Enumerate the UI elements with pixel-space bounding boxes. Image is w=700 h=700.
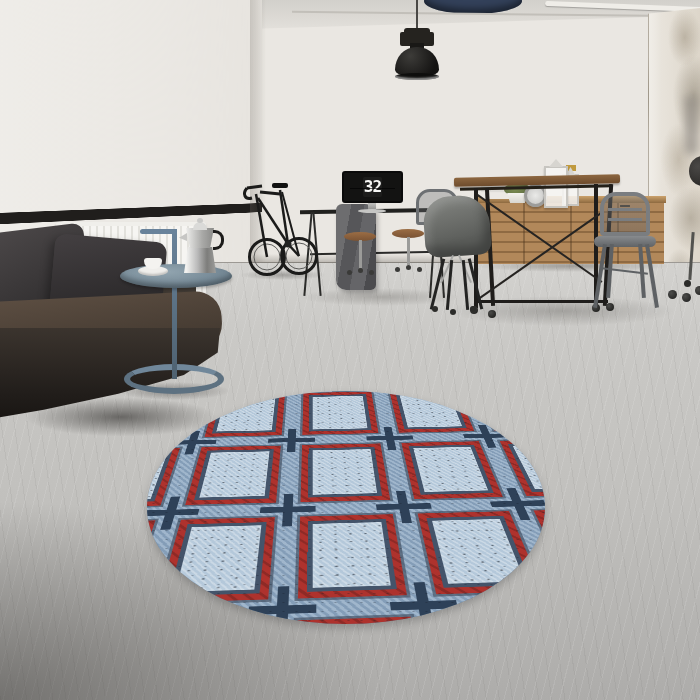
rug-pattern xyxy=(147,391,545,624)
rug-cross-motif xyxy=(147,495,203,529)
monitor-flip-clock: 11 32 xyxy=(342,171,403,203)
stool-pole xyxy=(359,240,362,268)
chair-leg xyxy=(593,244,607,308)
caster-wheel xyxy=(668,290,677,299)
chair-shell xyxy=(422,194,492,258)
window-bays xyxy=(0,0,254,217)
chair-casters xyxy=(432,306,438,312)
metal-armchair xyxy=(592,192,662,314)
clock-minutes: 32 xyxy=(363,177,382,197)
stool-casters xyxy=(406,265,411,270)
rug-cell-fill xyxy=(307,519,397,592)
moka-pot-lid xyxy=(193,222,207,230)
caster-wheel xyxy=(682,293,691,302)
side-table-hook xyxy=(140,229,177,234)
caster-wheel xyxy=(695,286,700,295)
draped-blanket xyxy=(336,204,376,290)
rug-cross-motif xyxy=(267,428,315,452)
stool-casters xyxy=(358,268,363,273)
chair-leg xyxy=(468,258,483,309)
side-table-post xyxy=(172,229,177,379)
chair-leg xyxy=(430,258,445,309)
moka-pot-body xyxy=(184,247,216,273)
rug-cell-fill xyxy=(194,449,274,500)
rug-cross-motif xyxy=(374,490,435,524)
rug-cross-motif xyxy=(258,493,315,527)
rug-cell-fill xyxy=(409,444,494,494)
pendant-lamp-rim xyxy=(395,73,439,80)
stool-pole xyxy=(407,237,410,265)
moka-pot-top xyxy=(186,228,214,248)
shell-chair xyxy=(420,196,498,312)
monitor-base xyxy=(358,209,386,213)
chair-leg xyxy=(606,244,614,298)
pendant-lamp-cap xyxy=(404,28,430,44)
chair-backrest xyxy=(600,192,650,236)
moka-pot-knob xyxy=(197,218,203,223)
chair-leg xyxy=(645,244,659,308)
rug-cell-fill xyxy=(308,446,382,497)
bicycle xyxy=(232,178,328,280)
loft-room-scene: 11 32 xyxy=(0,0,700,700)
round-rug xyxy=(147,391,545,624)
wall-dark-disc xyxy=(689,156,700,186)
wall-smudge xyxy=(685,96,698,154)
caster-wheel-base xyxy=(666,276,700,302)
rug-cross-motif xyxy=(365,426,416,450)
caster-hub xyxy=(684,280,691,287)
rug-cell-fill xyxy=(309,394,372,431)
